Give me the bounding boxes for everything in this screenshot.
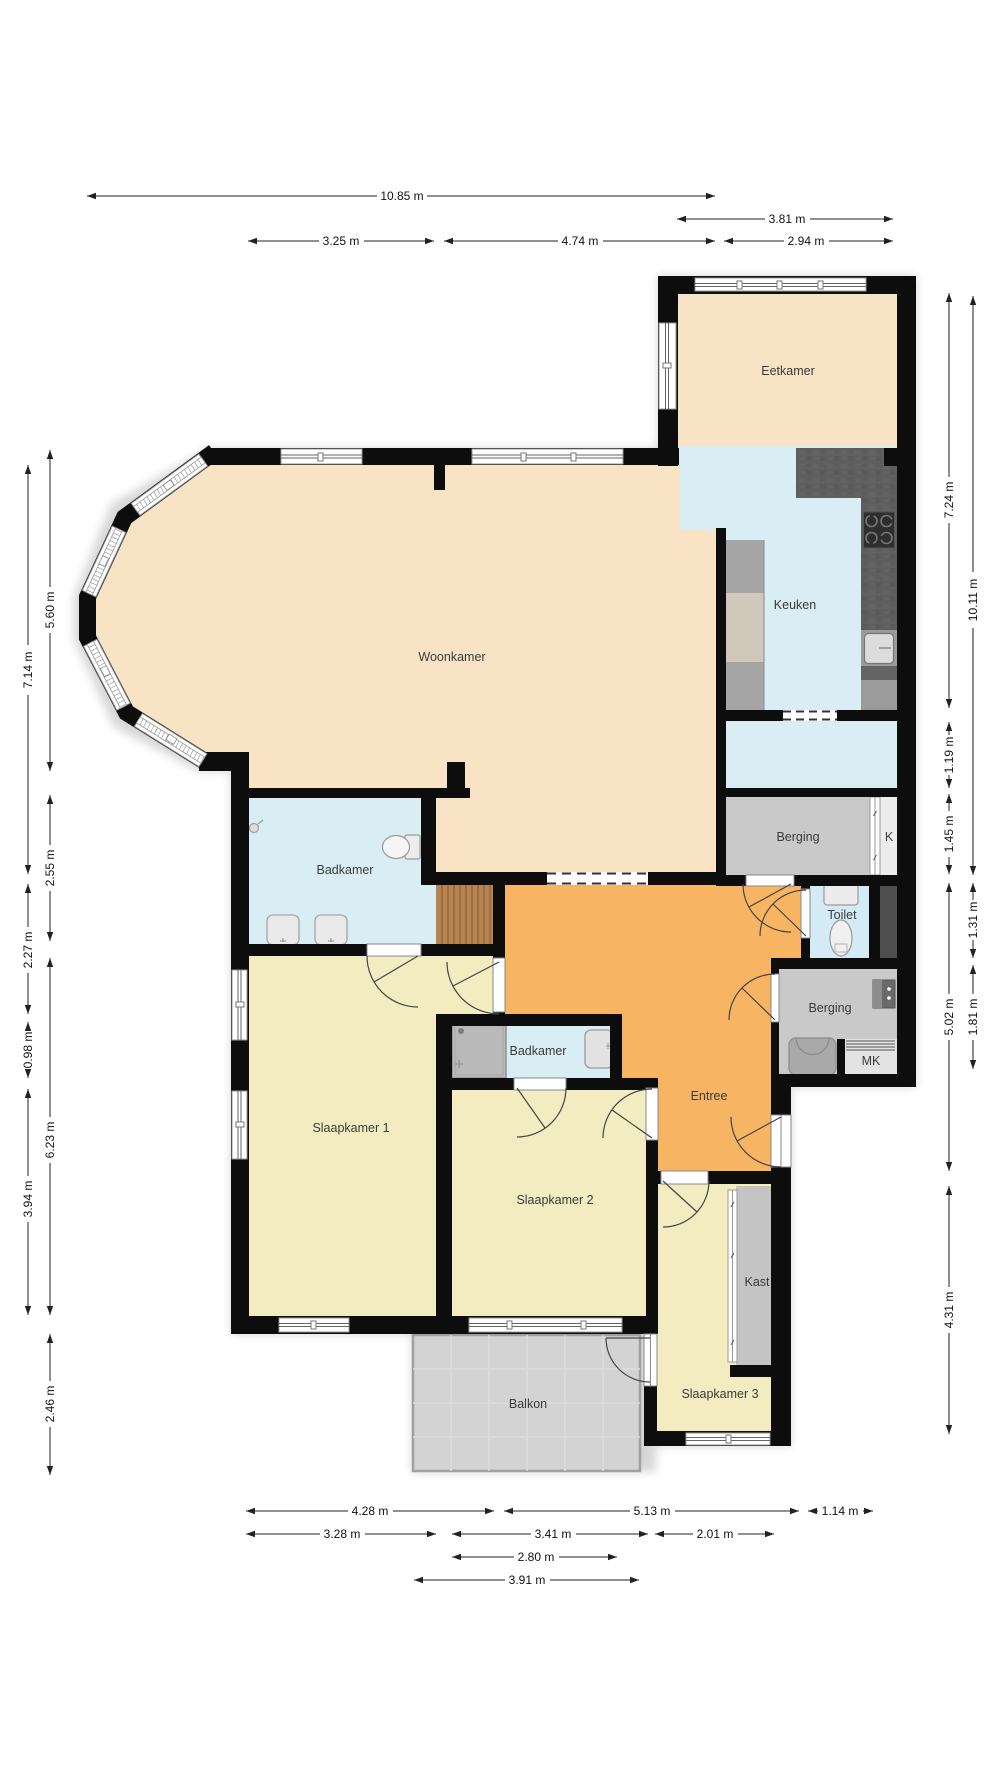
svg-text:2.80 m: 2.80 m [518,1550,555,1564]
svg-text:1.19 m: 1.19 m [942,737,956,774]
svg-text:Eetkamer: Eetkamer [761,364,815,378]
svg-text:1.14 m: 1.14 m [822,1504,859,1518]
svg-text:2.94 m: 2.94 m [788,234,825,248]
svg-text:3.25 m: 3.25 m [323,234,360,248]
svg-text:MK: MK [862,1054,881,1068]
svg-text:Slaapkamer 3: Slaapkamer 3 [681,1387,758,1401]
svg-text:2.27 m: 2.27 m [21,932,35,969]
svg-text:6.23 m: 6.23 m [43,1122,57,1159]
svg-text:Entree: Entree [691,1089,728,1103]
svg-text:Kast: Kast [744,1275,770,1289]
svg-text:10.11 m: 10.11 m [966,579,980,621]
svg-text:Berging: Berging [776,830,819,844]
svg-text:Woonkamer: Woonkamer [418,650,485,664]
svg-text:K: K [885,830,894,844]
svg-text:Slaapkamer 1: Slaapkamer 1 [312,1121,389,1135]
svg-text:10.85 m: 10.85 m [380,189,423,203]
svg-text:Keuken: Keuken [774,598,816,612]
svg-text:3.81 m: 3.81 m [769,212,806,226]
svg-text:7.24 m: 7.24 m [942,482,956,519]
svg-text:Toilet: Toilet [827,908,857,922]
svg-text:Balkon: Balkon [509,1397,547,1411]
svg-text:2.55 m: 2.55 m [43,850,57,887]
svg-text:3.28 m: 3.28 m [324,1527,361,1541]
svg-text:2.46 m: 2.46 m [43,1386,57,1423]
svg-text:4.28 m: 4.28 m [352,1504,389,1518]
svg-text:1.45 m: 1.45 m [942,816,956,853]
svg-text:7.14 m: 7.14 m [21,652,35,689]
svg-text:Slaapkamer 2: Slaapkamer 2 [516,1193,593,1207]
svg-text:5.60 m: 5.60 m [43,592,57,629]
svg-text:0.98 m: 0.98 m [21,1032,35,1069]
svg-text:3.94 m: 3.94 m [21,1181,35,1218]
svg-text:3.41 m: 3.41 m [535,1527,572,1541]
svg-text:1.31 m: 1.31 m [966,902,980,939]
svg-text:3.91 m: 3.91 m [509,1573,546,1587]
svg-text:4.31 m: 4.31 m [942,1292,956,1329]
svg-text:Badkamer: Badkamer [510,1044,567,1058]
svg-text:2.01 m: 2.01 m [697,1527,734,1541]
svg-text:5.13 m: 5.13 m [634,1504,671,1518]
svg-text:1.81 m: 1.81 m [966,999,980,1036]
svg-text:5.02 m: 5.02 m [942,999,956,1036]
svg-text:Badkamer: Badkamer [317,863,374,877]
svg-text:4.74 m: 4.74 m [562,234,599,248]
svg-text:Berging: Berging [808,1001,851,1015]
